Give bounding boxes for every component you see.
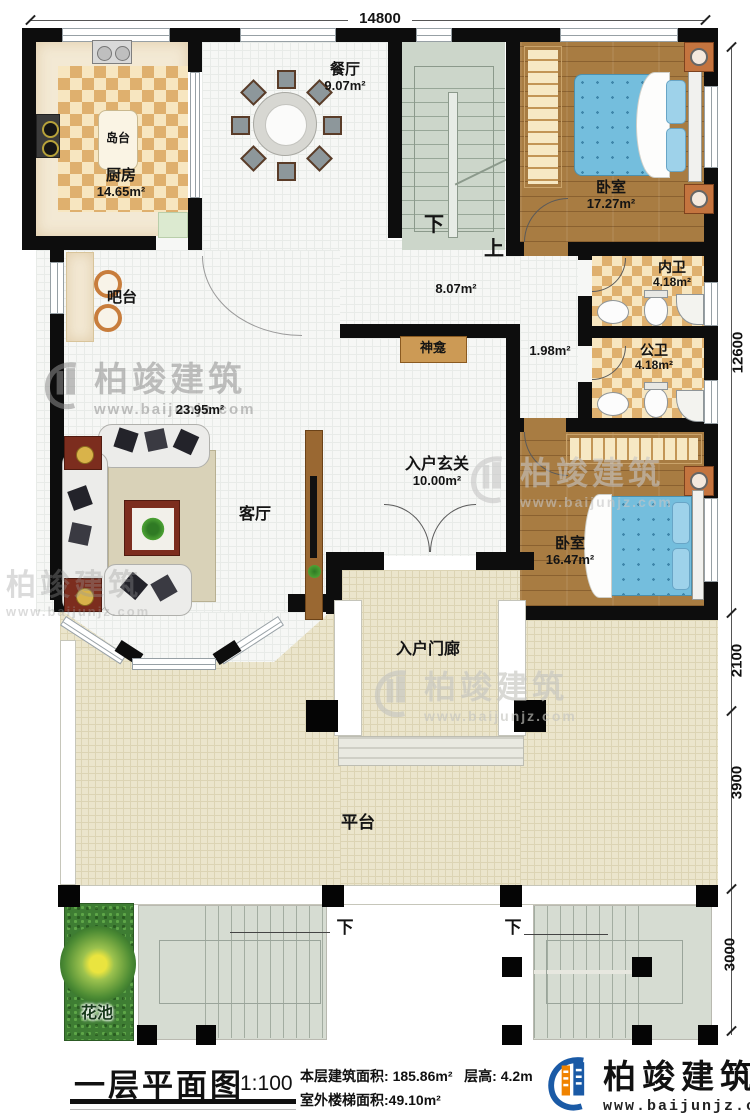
stairs-left-leader [230, 932, 330, 933]
coffee-table [124, 500, 180, 556]
bedroom2-pillow [672, 548, 690, 590]
bedroom1-right-window [704, 86, 718, 168]
porch-column [514, 700, 546, 732]
nightstand [684, 184, 714, 214]
bedroom1-wardrobe [524, 46, 562, 188]
platform-mid [340, 764, 520, 905]
platform-column [196, 1025, 216, 1045]
tv-cabinet [305, 430, 323, 620]
wall-stair-right [506, 42, 520, 256]
bedroom2-wardrobe [566, 434, 702, 464]
title-underline [70, 1099, 296, 1104]
tv-icon [310, 476, 317, 558]
platform-column [698, 1025, 718, 1045]
dining-label: 餐厅9.07m² [324, 62, 365, 93]
platform-walk-left [60, 640, 76, 885]
kitchen-label: 厨房14.65m² [97, 168, 145, 199]
floor-area: 本层建筑面积: 185.86m² 层高: 4.2m [300, 1066, 533, 1086]
bedroom1-label: 卧室17.27m² [587, 180, 635, 211]
plant-icon [308, 565, 321, 578]
corridor-floor [520, 244, 578, 418]
wall-porch-stub-right [476, 552, 534, 570]
outdoor-stairs-right-down-label: 下 [505, 918, 522, 937]
bedroom1-headboard [688, 68, 702, 182]
toilet-icon [644, 296, 668, 326]
brand-logo-icon [545, 1055, 595, 1111]
corridor-area-label: 1.98m² [529, 344, 570, 359]
living-area-label: 23.95m² [176, 403, 224, 418]
cooktop [36, 114, 60, 158]
platform-walk-bottom [76, 885, 718, 905]
side-table [64, 578, 102, 612]
lamp-icon [690, 472, 708, 490]
wall-left-kitchen [22, 28, 36, 250]
floor-plan: 柏竣建筑 www.baijunjz.com 柏竣建筑 www.baijunjz.… [0, 0, 750, 1117]
bedroom1-pillow [666, 80, 686, 124]
porch-pilaster-left [334, 600, 362, 736]
plant-icon [140, 516, 166, 542]
lamp-icon [690, 190, 708, 208]
inner-bath-label: 内卫4.18m² [653, 260, 691, 289]
kitchen-door-mat [158, 212, 188, 238]
kitchen-slider-window [190, 72, 200, 198]
island-label: 岛台 [106, 132, 130, 145]
wall-foyer-right [506, 324, 520, 570]
stair-area: 室外楼梯面积:49.10m² [300, 1090, 441, 1110]
side-table [64, 436, 102, 470]
dim-right-12600: 12600 [730, 325, 747, 381]
dining-top-window [240, 28, 336, 42]
dining-chair [277, 70, 296, 89]
dim-right-3000: 3000 [722, 930, 739, 980]
wall-stair-left [388, 42, 402, 238]
stair-top-window [416, 28, 452, 42]
bay-window-front [132, 658, 216, 670]
brand-name: 柏竣建筑 [603, 1050, 750, 1098]
shrine-label: 神龛 [420, 341, 446, 356]
living-label: 客厅 [239, 506, 271, 524]
platform-column [137, 1025, 157, 1045]
bar-label: 吧台 [107, 290, 137, 307]
bedroom2-label: 卧室16.47m² [546, 536, 594, 567]
sofa-chaise [104, 564, 192, 616]
porch-steps [338, 736, 524, 766]
dim-line-top [412, 20, 706, 21]
foyer-label: 入户玄关10.00m² [405, 456, 469, 488]
bar-stool [94, 304, 122, 332]
wall-bath-divider [592, 326, 704, 338]
sofa-pillow [144, 428, 168, 452]
dim-top-label: 14800 [359, 11, 401, 28]
bar-counter [66, 252, 94, 342]
wall-bedroom2-bottom [520, 606, 718, 620]
dining-chair [277, 162, 296, 181]
dining-chair [231, 116, 250, 135]
stair-rail [448, 92, 458, 238]
outdoor-stairs-left [138, 905, 327, 1040]
platform-column [502, 957, 522, 977]
platform-column [696, 885, 718, 907]
stair-up-label: 上 [484, 238, 504, 260]
platform-column [632, 1025, 652, 1045]
public-bath-label: 公卫4.18m² [635, 343, 673, 372]
porch-label: 入户门廊 [396, 641, 460, 659]
sink-icon [597, 300, 629, 324]
tree-icon [60, 926, 136, 1002]
living-left-window [50, 262, 64, 314]
wall-kitchen-right-b [188, 198, 202, 250]
nightstand [684, 42, 714, 72]
sink-icon [597, 392, 629, 416]
flower-bed-label: 花池 [81, 1005, 113, 1023]
platform-right [520, 620, 718, 905]
plan-scale: 1:100 [240, 1072, 293, 1096]
platform-column [322, 885, 344, 907]
dining-table [253, 92, 317, 156]
porch-column [306, 700, 338, 732]
platform-column [58, 885, 80, 907]
platform-label: 平台 [341, 813, 375, 832]
bedroom2-headboard [692, 490, 704, 600]
public-bath-window [704, 380, 718, 424]
platform-column [502, 1025, 522, 1045]
outdoor-stairs-right [533, 905, 712, 1040]
bedroom2-pillow [672, 502, 690, 544]
stairs-right-leader [524, 934, 608, 935]
wall-kitchen-right-a [188, 42, 202, 72]
dining-chair [323, 116, 342, 135]
title-underline-thin [70, 1109, 296, 1110]
dim-right-3900: 3900 [729, 758, 746, 808]
dim-right-2100: 2100 [729, 636, 746, 686]
bedroom1-top-window [560, 28, 678, 42]
platform-column [632, 957, 652, 977]
bedroom1-sheet [636, 72, 670, 178]
foyer-floor [340, 338, 506, 556]
dim-line-top [30, 20, 348, 21]
kitchen-sink [92, 40, 132, 64]
stair-down-label: 下 [424, 214, 444, 236]
sofa-pillow [68, 522, 92, 546]
bedroom1-pillow [666, 128, 686, 172]
outdoor-stairs-left-down-label: 下 [337, 918, 354, 937]
brand-block: 柏竣建筑 www.baijunjz.com [545, 1050, 750, 1115]
toilet-tank [644, 382, 668, 390]
platform-column [500, 885, 522, 907]
toilet-tank [644, 290, 668, 298]
bedroom2-right-window [704, 498, 718, 582]
toilet-icon [644, 388, 668, 418]
hall-area-label: 8.07m² [435, 282, 476, 297]
inner-bath-window [704, 282, 718, 326]
lamp-icon [690, 48, 708, 66]
brand-url: www.baijunjz.com [603, 1098, 750, 1115]
